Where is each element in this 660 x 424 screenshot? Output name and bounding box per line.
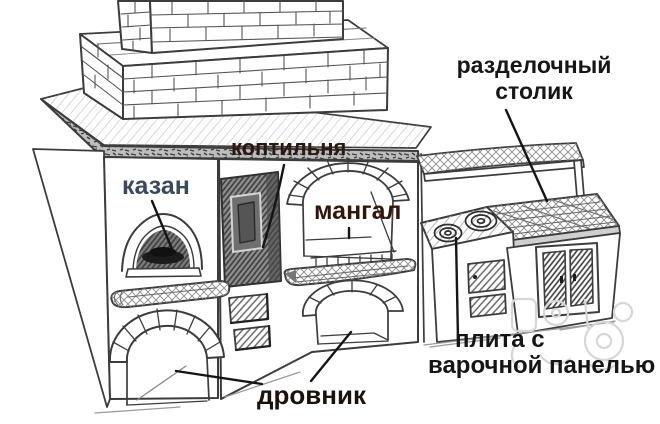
label-razdelochny-line1: разделочный — [448, 52, 620, 78]
left-side-face — [33, 149, 110, 407]
section-left-edge — [421, 154, 424, 342]
label-drovnik: дровник — [257, 380, 366, 411]
middle-section — [219, 158, 418, 399]
smokehouse-door — [221, 172, 281, 287]
diagram-canvas: казан коптильня мангал разделочный столи… — [0, 0, 660, 424]
label-razdelochny-stolik: разделочный столик — [448, 52, 620, 104]
back-shelf — [417, 143, 584, 197]
stove-and-table-section — [417, 143, 620, 345]
label-plita-line2: варочной панелью — [428, 352, 655, 380]
label-mangal: мангал — [314, 197, 401, 226]
label-plita-line1: плита с — [455, 326, 545, 354]
label-koptilnya: коптильня — [231, 135, 346, 161]
stove-doors — [468, 260, 506, 317]
label-razdelochny-line2: столик — [448, 78, 620, 104]
label-kazan: казан — [122, 172, 190, 201]
